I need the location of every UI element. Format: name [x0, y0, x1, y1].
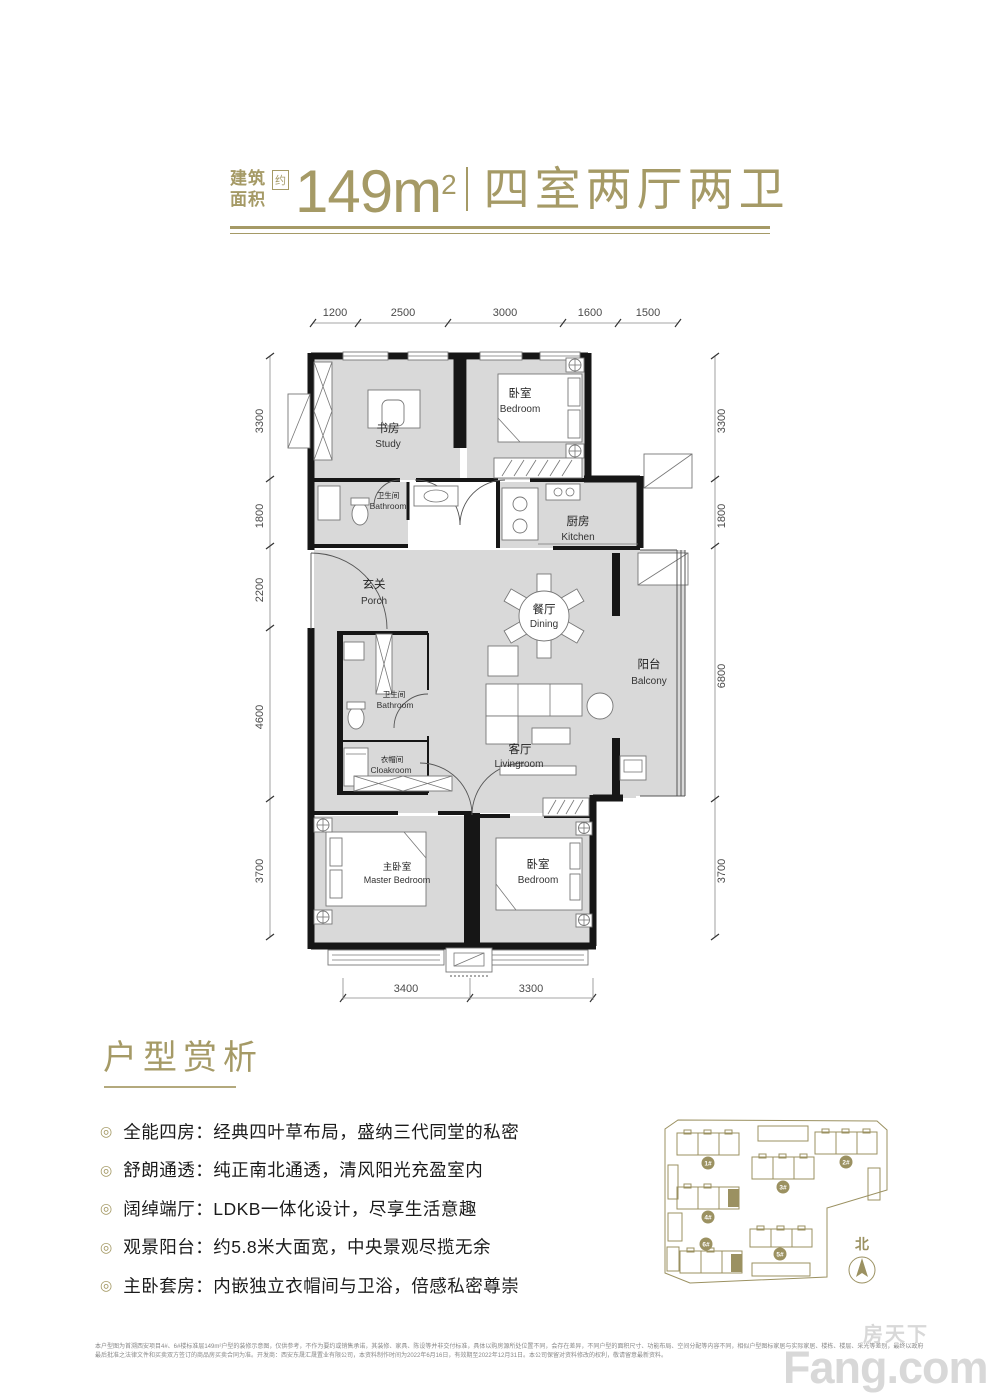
highlighted-unit [731, 1254, 742, 1272]
bullseye-icon: ◎ [100, 1124, 112, 1138]
dim-right-2: 6800 [716, 664, 728, 688]
dim-right-3: 3700 [716, 859, 728, 883]
analysis-title: 户型赏析 [103, 1030, 263, 1079]
area-label-line2: 面积 [230, 189, 266, 210]
bullet-item: ◎主卧套房：内嵌独立衣帽间与卫浴，倍感私密尊崇 [100, 1266, 519, 1305]
bullet-text: 主卧套房：内嵌独立衣帽间与卫浴，倍感私密尊崇 [123, 1273, 519, 1298]
bullet-text: 阔绰端厅：LDKB一体化设计，尽享生活意趣 [123, 1196, 477, 1221]
building-2 [815, 1129, 877, 1154]
dimension-bottom: 3400 3300 [340, 978, 596, 1002]
room-bathroom-top-en: Bathroom [370, 501, 407, 511]
building-5 [750, 1226, 812, 1247]
badge-5: 5# [776, 1252, 784, 1259]
bullet-text: 全能四房：经典四叶草布局，盛纳三代同堂的私密 [123, 1119, 519, 1144]
dim-right-1: 1800 [716, 504, 728, 528]
floorplan-drawing: 1200 2500 3000 1600 1500 3300 1800 2200 … [248, 298, 760, 1020]
badge-3: 3# [779, 1185, 787, 1192]
dim-top-2: 3000 [493, 307, 517, 319]
building-area-label: 建筑 面积 [230, 168, 266, 210]
furniture-bedroom-top [494, 358, 584, 478]
building-1 [677, 1130, 739, 1155]
furniture-balcony [620, 756, 646, 780]
north-compass: 北 [849, 1236, 875, 1283]
building-6 [680, 1248, 742, 1273]
siteplan-map: 1# 2# 3# 4# 5# 6# 北 [640, 1093, 940, 1313]
approx-badge: 约 [272, 170, 289, 190]
site-badges: 1# 2# 3# 4# 5# 6# [700, 1156, 853, 1261]
room-cloakroom-en: Cloakroom [370, 765, 411, 775]
room-bathroom-mid-zh: 卫生间 [383, 689, 406, 699]
badge-2: 2# [842, 1160, 850, 1167]
header-divider [466, 167, 468, 211]
bullet-item: ◎舒朗通透：纯正南北通透，清风阳光充盈室内 [100, 1151, 519, 1190]
bullet-item: ◎观景阳台：约5.8米大面宽，中央景观尽揽无余 [100, 1228, 519, 1267]
room-kitchen-zh: 厨房 [567, 515, 590, 528]
dim-left-1: 1800 [254, 504, 266, 528]
dimension-top: 1200 2500 3000 1600 1500 [310, 307, 681, 327]
area-label-line1: 建筑 [230, 168, 266, 189]
bullseye-icon: ◎ [100, 1201, 112, 1215]
dim-right-0: 3300 [716, 409, 728, 433]
dim-top-4: 1500 [636, 307, 660, 319]
bullet-item: ◎阔绰端厅：LDKB一体化设计，尽享生活意趣 [100, 1189, 519, 1228]
room-bedroom-top-zh: 卧室 [509, 386, 532, 400]
room-master-zh: 主卧室 [383, 861, 412, 873]
dim-top-1: 2500 [391, 307, 415, 319]
floorplan-flyer-page: { "header": { "area_label_1": "建筑", "are… [0, 0, 990, 1400]
area-value: 149m2 [295, 156, 456, 221]
room-porch-zh: 玄关 [363, 577, 386, 591]
dim-top-0: 1200 [323, 307, 347, 319]
room-dining-en: Dining [530, 619, 558, 630]
room-dining-zh: 餐厅 [533, 602, 556, 616]
room-bedroom-bottom-en: Bedroom [518, 875, 559, 886]
site-amenity-pads [667, 1126, 880, 1276]
room-bathroom-mid-en: Bathroom [377, 700, 414, 710]
bullet-text: 观景阳台：约5.8米大面宽，中央景观尽揽无余 [123, 1234, 491, 1259]
room-kitchen-en: Kitchen [561, 532, 594, 543]
badge-1: 1# [704, 1161, 712, 1168]
room-living-en: Livingroom [495, 759, 544, 770]
dim-bottom-0: 3400 [394, 983, 418, 995]
bullseye-icon: ◎ [100, 1240, 112, 1254]
dim-top-3: 1600 [578, 307, 602, 319]
badge-6: 6# [702, 1242, 710, 1249]
dim-left-3: 4600 [254, 705, 266, 729]
dim-bottom-1: 3300 [519, 983, 543, 995]
analysis-underline [104, 1086, 236, 1088]
header-double-rule [230, 226, 770, 234]
dim-left-2: 2200 [254, 578, 266, 602]
area-number: 149m [295, 158, 441, 225]
room-balcony-en: Balcony [631, 676, 667, 687]
bullseye-icon: ◎ [100, 1163, 112, 1177]
bullet-text: 舒朗通透：纯正南北通透，清风阳光充盈室内 [123, 1157, 483, 1182]
highlighted-unit [728, 1189, 739, 1207]
room-cloakroom-zh: 衣帽间 [381, 754, 404, 764]
building-4 [677, 1184, 739, 1209]
building-3 [752, 1154, 814, 1179]
bullet-item: ◎全能四房：经典四叶草布局，盛纳三代同堂的私密 [100, 1112, 519, 1151]
bullseye-icon: ◎ [100, 1278, 112, 1292]
dimension-right: 3300 1800 6800 3700 [711, 353, 728, 940]
room-bedroom-bottom-zh: 卧室 [527, 857, 550, 871]
room-master-en: Master Bedroom [364, 875, 431, 885]
room-bedroom-top-en: Bedroom [500, 404, 541, 415]
header: 建筑 面积 约 149m2 四室两厅两卫 [230, 156, 790, 221]
dim-left-0: 3300 [254, 409, 266, 433]
compass-arrow-icon [856, 1258, 868, 1277]
layout-title: 四室两厅两卫 [484, 166, 790, 212]
area-superscript: 2 [441, 169, 456, 200]
room-study-zh: 书房 [377, 422, 400, 435]
room-balcony-zh: 阳台 [638, 657, 661, 671]
dimension-left: 3300 1800 2200 4600 3700 [254, 353, 274, 940]
watermark-en: Fang.com [783, 1347, 988, 1390]
room-porch-en: Porch [361, 596, 387, 607]
room-living-zh: 客厅 [509, 742, 532, 756]
north-label: 北 [855, 1236, 869, 1252]
dim-left-4: 3700 [254, 859, 266, 883]
room-study-en: Study [375, 439, 401, 450]
analysis-bullet-list: ◎全能四房：经典四叶草布局，盛纳三代同堂的私密 ◎舒朗通透：纯正南北通透，清风阳… [100, 1112, 519, 1305]
room-bathroom-top-zh: 卫生间 [377, 490, 400, 500]
fang-watermark-logo: 房天下 Fang.com [783, 1318, 988, 1390]
badge-4: 4# [704, 1215, 712, 1222]
